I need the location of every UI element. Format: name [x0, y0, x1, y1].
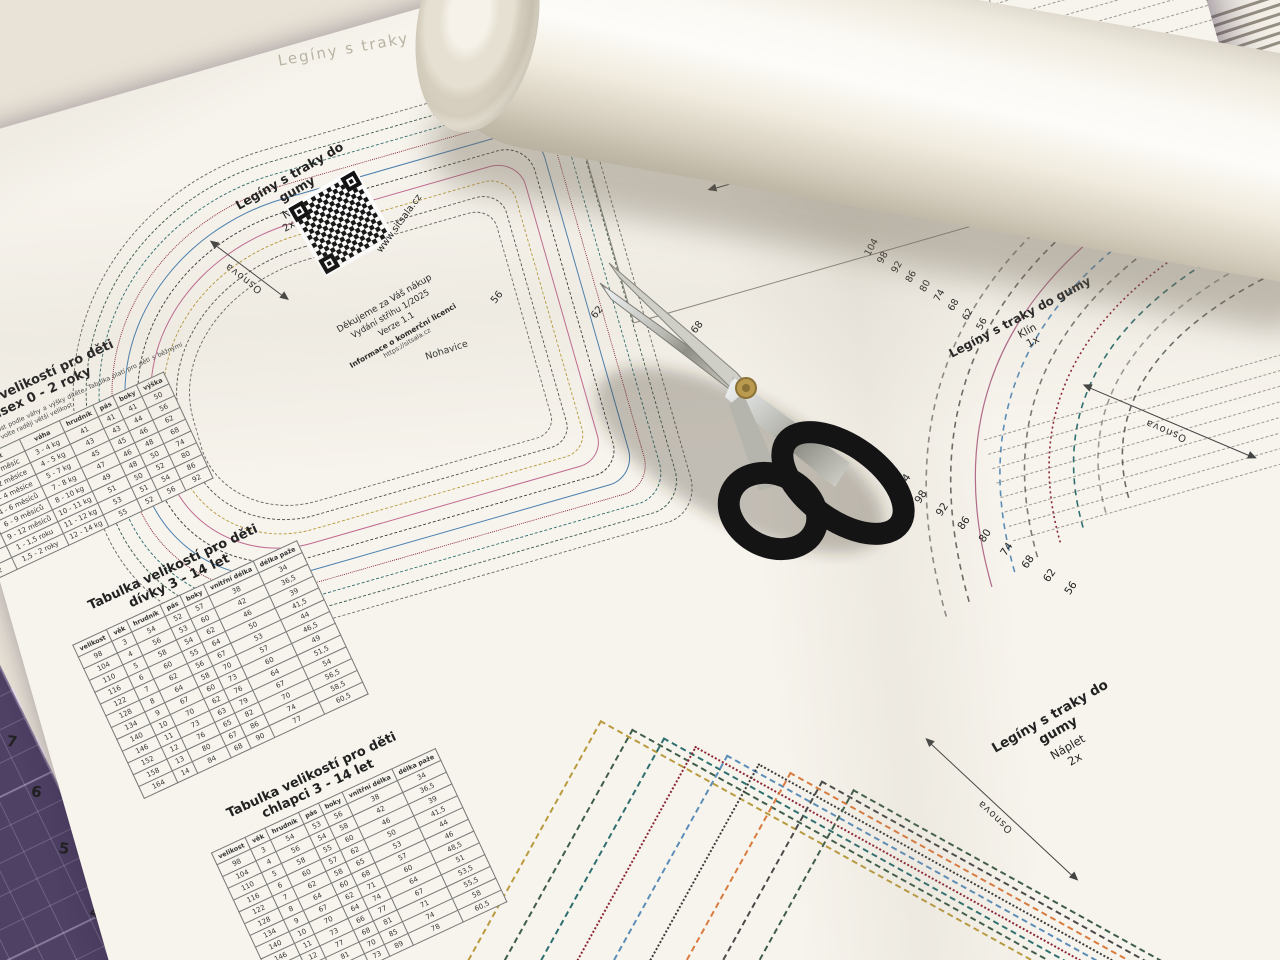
- ruler-number: 5: [57, 839, 70, 858]
- scissors: [505, 225, 925, 565]
- scissors-screw-center: [742, 384, 750, 392]
- size-table: velikostvěkhrudníkpásbokyvnitřní délkadé…: [211, 748, 507, 960]
- ruler-number: 7: [5, 732, 18, 751]
- naplet-piece-label: Legíny s traky do gumy Náplet 2x: [977, 670, 1148, 805]
- ruler-number: 6: [30, 782, 43, 801]
- scene: 87654 Legíny s traky do gumy: [0, 0, 1280, 960]
